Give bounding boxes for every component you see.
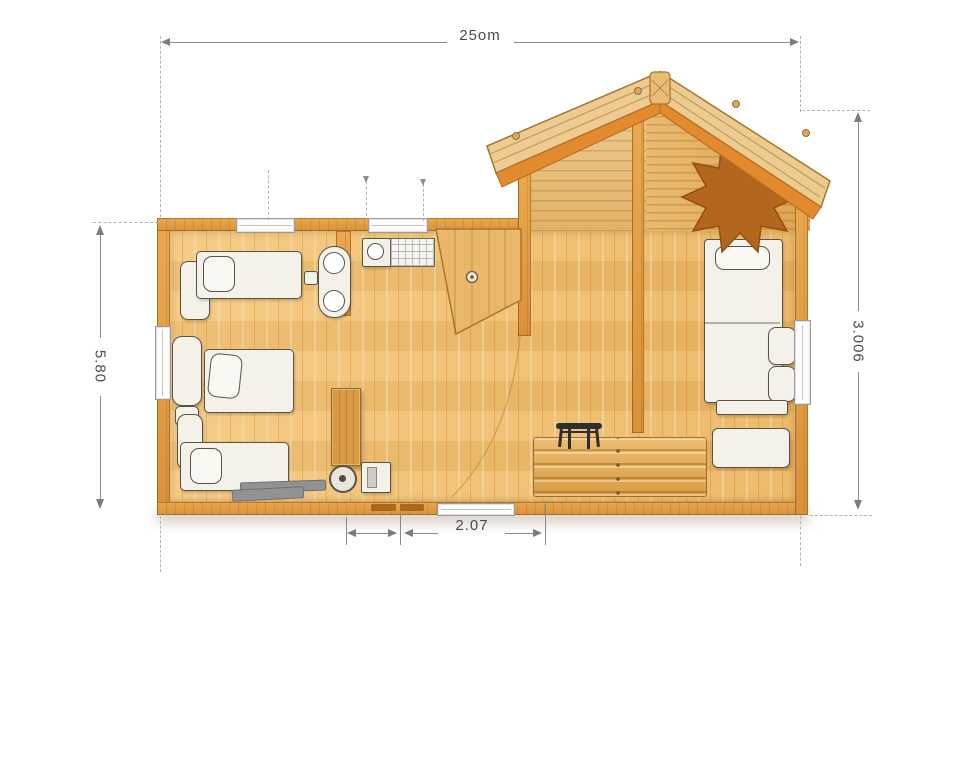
appliance-detail — [367, 467, 377, 488]
dim-label-bottom: 2.07 — [427, 517, 517, 534]
table-shelf — [560, 431, 598, 433]
extension-arrowhead — [363, 176, 369, 183]
door-line — [441, 509, 511, 510]
dim-arrow — [533, 529, 542, 537]
wall-gable-left — [518, 166, 531, 336]
drain-dot — [339, 475, 346, 482]
dim-arrow — [854, 112, 862, 122]
dim-line-right — [858, 372, 859, 500]
dim-label-right: 3.006 — [850, 312, 867, 372]
single-bed-top — [196, 251, 302, 299]
table-leg — [568, 429, 571, 449]
apex-ornament — [650, 72, 670, 104]
window-top-1 — [236, 218, 295, 233]
ottoman — [712, 428, 790, 468]
door-line — [802, 325, 803, 400]
dim-line-left — [100, 396, 101, 500]
bed-foot-cushion — [716, 400, 788, 415]
tall-cabinet — [331, 388, 361, 466]
pillow — [203, 256, 235, 292]
extension-line — [93, 222, 158, 223]
floor-drain — [329, 465, 357, 493]
dim-arrow — [388, 529, 397, 537]
dim-label-left: 5.80 — [92, 337, 109, 397]
doorway-right — [794, 320, 811, 405]
table-leg — [587, 429, 590, 449]
basin-bottom — [323, 290, 345, 312]
dim-line-top — [514, 42, 797, 43]
wall-vent-2 — [400, 504, 424, 511]
extension-line — [802, 110, 870, 111]
table-leg — [595, 429, 600, 447]
dim-arrow — [347, 529, 356, 537]
window-mullion — [371, 225, 425, 226]
roof-nail — [733, 101, 740, 108]
extension-line — [810, 515, 872, 516]
side-cushion-1 — [768, 327, 796, 365]
dim-line-right — [858, 121, 859, 311]
extension-line — [800, 516, 801, 566]
pillow — [207, 352, 243, 399]
dim-line-top — [167, 42, 447, 43]
dim-arrow — [854, 500, 862, 510]
window-left — [155, 326, 171, 400]
dim-arrow — [404, 529, 413, 537]
washbasin-unit — [362, 238, 391, 267]
double-bed-middle — [204, 349, 294, 413]
gable-interior-wall — [518, 100, 810, 231]
table-leg — [558, 429, 563, 447]
dim-label-top: 25om — [415, 27, 545, 44]
basin-bowl — [367, 243, 384, 260]
dim-tick — [545, 504, 546, 545]
floor-plan-canvas: 25om 5.80 3.006 2.07 — [0, 0, 960, 768]
window-mullion — [162, 330, 163, 396]
dim-arrow — [96, 225, 104, 235]
extension-line — [800, 36, 801, 112]
dim-arrow — [96, 499, 104, 509]
tiled-counter — [390, 238, 435, 267]
wall-top — [157, 218, 531, 231]
doorway-bottom — [437, 503, 515, 516]
extension-line — [160, 36, 161, 222]
roof-nail — [635, 88, 642, 95]
coffee-table — [556, 423, 602, 453]
dim-line-left — [100, 234, 101, 338]
side-cushion-2 — [768, 366, 796, 402]
dim-arrow — [161, 38, 170, 46]
window-mullion — [239, 225, 292, 226]
window-top-2 — [368, 218, 428, 233]
room-divider-wall — [632, 112, 644, 433]
pillow — [190, 448, 222, 484]
table-top — [556, 423, 602, 429]
mattress-seam — [705, 322, 780, 324]
extension-arrowhead — [420, 179, 426, 186]
roof-nail — [803, 130, 810, 137]
roof-nail — [513, 133, 520, 140]
wall-vent-1 — [371, 504, 396, 511]
gable-interior-right — [646, 100, 810, 231]
appliance — [361, 462, 391, 493]
basin-top — [323, 252, 345, 274]
dim-tick — [400, 514, 401, 545]
dim-arrow — [790, 38, 799, 46]
pillow — [715, 246, 770, 270]
extension-line — [160, 516, 161, 572]
chaise-left-wall — [172, 336, 202, 406]
extension-line — [268, 170, 269, 220]
wall-switch — [304, 271, 318, 285]
